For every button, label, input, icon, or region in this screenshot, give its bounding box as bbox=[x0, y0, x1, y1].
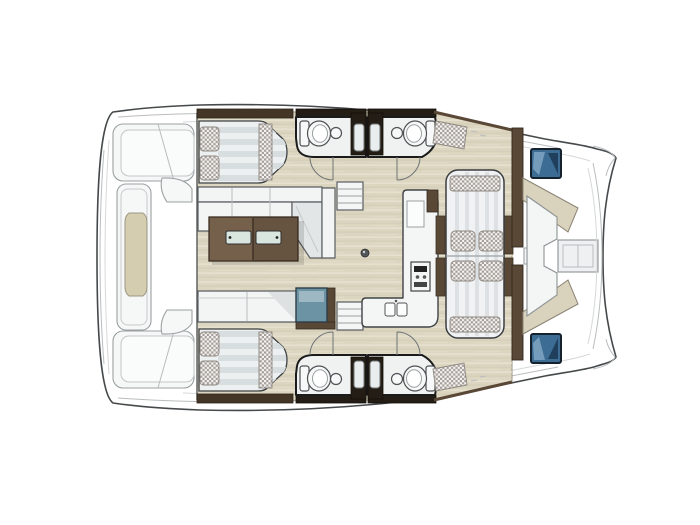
aft-cockpit-seat-port bbox=[161, 178, 192, 202]
foredeck-hatch-port bbox=[531, 149, 561, 178]
bulkhead-panel bbox=[512, 265, 523, 360]
lounge-cushion bbox=[479, 261, 503, 281]
sink-basin bbox=[397, 303, 407, 316]
table-latch bbox=[229, 236, 232, 239]
foredeck-hatch-starboard bbox=[531, 334, 561, 363]
cooler-trim-bottom bbox=[296, 322, 335, 329]
table-latch bbox=[276, 236, 279, 239]
platform-inset bbox=[125, 213, 147, 296]
floorplan-canvas bbox=[0, 0, 700, 525]
transom-steps-port bbox=[113, 124, 194, 181]
lounge-cushion bbox=[451, 261, 475, 281]
port-hull-steps bbox=[337, 182, 363, 210]
stove-knob bbox=[416, 275, 420, 279]
lounge-cushion bbox=[479, 231, 503, 251]
lounge-cushion bbox=[451, 231, 475, 251]
galley-end-cabinet bbox=[427, 190, 438, 212]
forward-seat-structure bbox=[527, 196, 557, 316]
stove-knob bbox=[423, 275, 427, 279]
catamaran-floorplan bbox=[0, 0, 700, 525]
transom-steps-starboard bbox=[113, 331, 194, 388]
fitting-highlight bbox=[363, 251, 365, 253]
bulkhead-panel bbox=[512, 128, 523, 247]
cooler-highlight bbox=[299, 291, 324, 302]
stern-edge-line-2 bbox=[105, 140, 109, 374]
sofa-backrest bbox=[198, 187, 322, 202]
stove-band bbox=[414, 282, 427, 287]
sofa-arm-panel bbox=[322, 188, 335, 258]
stern-platform bbox=[113, 113, 197, 400]
stove-band bbox=[414, 266, 427, 272]
mast-post-fitting bbox=[361, 249, 369, 257]
starboard-hull-steps bbox=[337, 302, 363, 330]
faucet bbox=[395, 300, 398, 303]
sink-basin bbox=[385, 303, 395, 316]
dinette-lounge bbox=[436, 170, 513, 338]
aft-cockpit-seat-starboard bbox=[161, 310, 192, 334]
forward-cockpit bbox=[523, 146, 615, 369]
lounge-checkered-band bbox=[450, 317, 500, 332]
lounge-checkered-band bbox=[450, 176, 500, 191]
stern-edge-line bbox=[100, 150, 104, 364]
lounge-rail bbox=[436, 216, 445, 254]
galley-cabinet bbox=[407, 201, 424, 227]
salon bbox=[198, 187, 335, 329]
lounge-rail bbox=[436, 258, 445, 296]
